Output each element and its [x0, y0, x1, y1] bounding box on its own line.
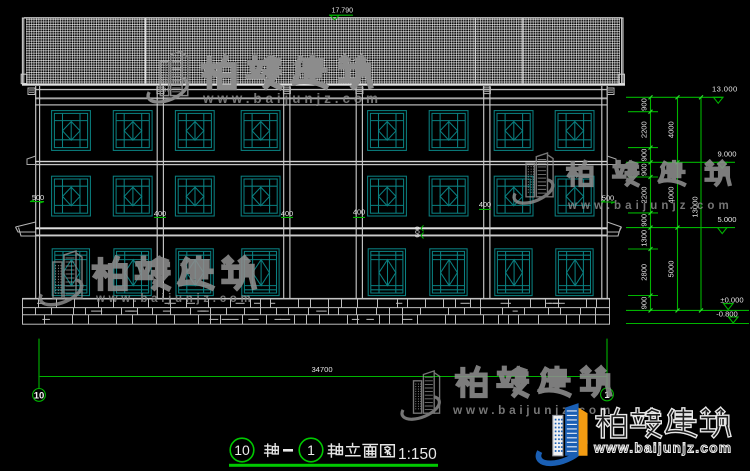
svg-text:900: 900	[640, 98, 649, 111]
svg-text:400: 400	[479, 200, 491, 209]
svg-text:500: 500	[32, 193, 44, 202]
svg-text:900: 900	[640, 163, 649, 176]
svg-text:www.baijunjz.com: www.baijunjz.com	[567, 200, 733, 212]
svg-text:13.000: 13.000	[712, 85, 738, 94]
svg-text:±0.000: ±0.000	[720, 296, 743, 305]
svg-text:17.790: 17.790	[332, 8, 354, 15]
svg-text:5.000: 5.000	[717, 215, 736, 224]
svg-text:4000: 4000	[667, 121, 676, 138]
svg-text:2800: 2800	[640, 264, 649, 281]
svg-text:9.000: 9.000	[717, 150, 736, 159]
svg-text:www.baijunjz.com: www.baijunjz.com	[202, 91, 382, 106]
svg-text:1: 1	[307, 442, 315, 458]
svg-text:900: 900	[640, 214, 649, 227]
svg-text:600: 600	[415, 226, 422, 238]
svg-text:400: 400	[353, 208, 365, 217]
svg-text:34700: 34700	[311, 365, 332, 374]
svg-text:2200: 2200	[640, 121, 649, 138]
svg-text:10: 10	[234, 442, 250, 458]
svg-text:900: 900	[640, 149, 649, 162]
svg-text:900: 900	[640, 297, 649, 310]
svg-text:400: 400	[154, 209, 166, 218]
svg-text:5000: 5000	[667, 261, 676, 278]
svg-text:10: 10	[34, 390, 45, 401]
svg-text:www.baijunjz.com: www.baijunjz.com	[593, 441, 732, 456]
svg-text:400: 400	[281, 209, 293, 218]
svg-text:www.baijunjz.com: www.baijunjz.com	[452, 403, 614, 417]
svg-text:1300: 1300	[640, 230, 649, 247]
svg-text:-0.800: -0.800	[716, 309, 738, 318]
svg-text:www.baijunjz.com: www.baijunjz.com	[95, 293, 254, 305]
svg-text:1:150: 1:150	[398, 446, 437, 463]
